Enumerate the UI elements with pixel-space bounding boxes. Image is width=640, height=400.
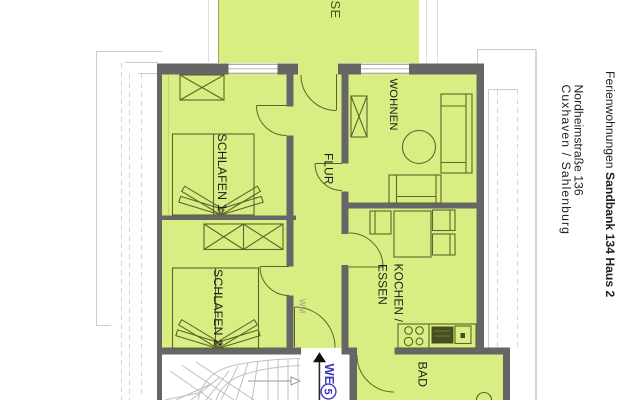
svg-text:KOCHEN /: KOCHEN / (392, 264, 406, 323)
svg-text:BAD: BAD (416, 362, 430, 388)
svg-text:FLUR: FLUR (322, 153, 336, 185)
svg-text:SCHLAFEN 1: SCHLAFEN 1 (215, 134, 229, 211)
svg-text:WOHNEN: WOHNEN (387, 79, 399, 131)
svg-text:Cuxhaven / Sahlenburg: Cuxhaven / Sahlenburg (559, 85, 573, 235)
svg-text:5: 5 (322, 388, 334, 394)
svg-text:Ferienwohnungen Sandbank 134 H: Ferienwohnungen Sandbank 134 Haus 2 (603, 71, 617, 298)
svg-text:WE: WE (322, 364, 337, 385)
svg-text:SCHLAFEN 2: SCHLAFEN 2 (211, 269, 225, 346)
svg-text:RRASSE: RRASSE (328, 0, 343, 19)
svg-text:ESSEN: ESSEN (376, 264, 390, 305)
svg-text:WM: WM (298, 299, 307, 314)
